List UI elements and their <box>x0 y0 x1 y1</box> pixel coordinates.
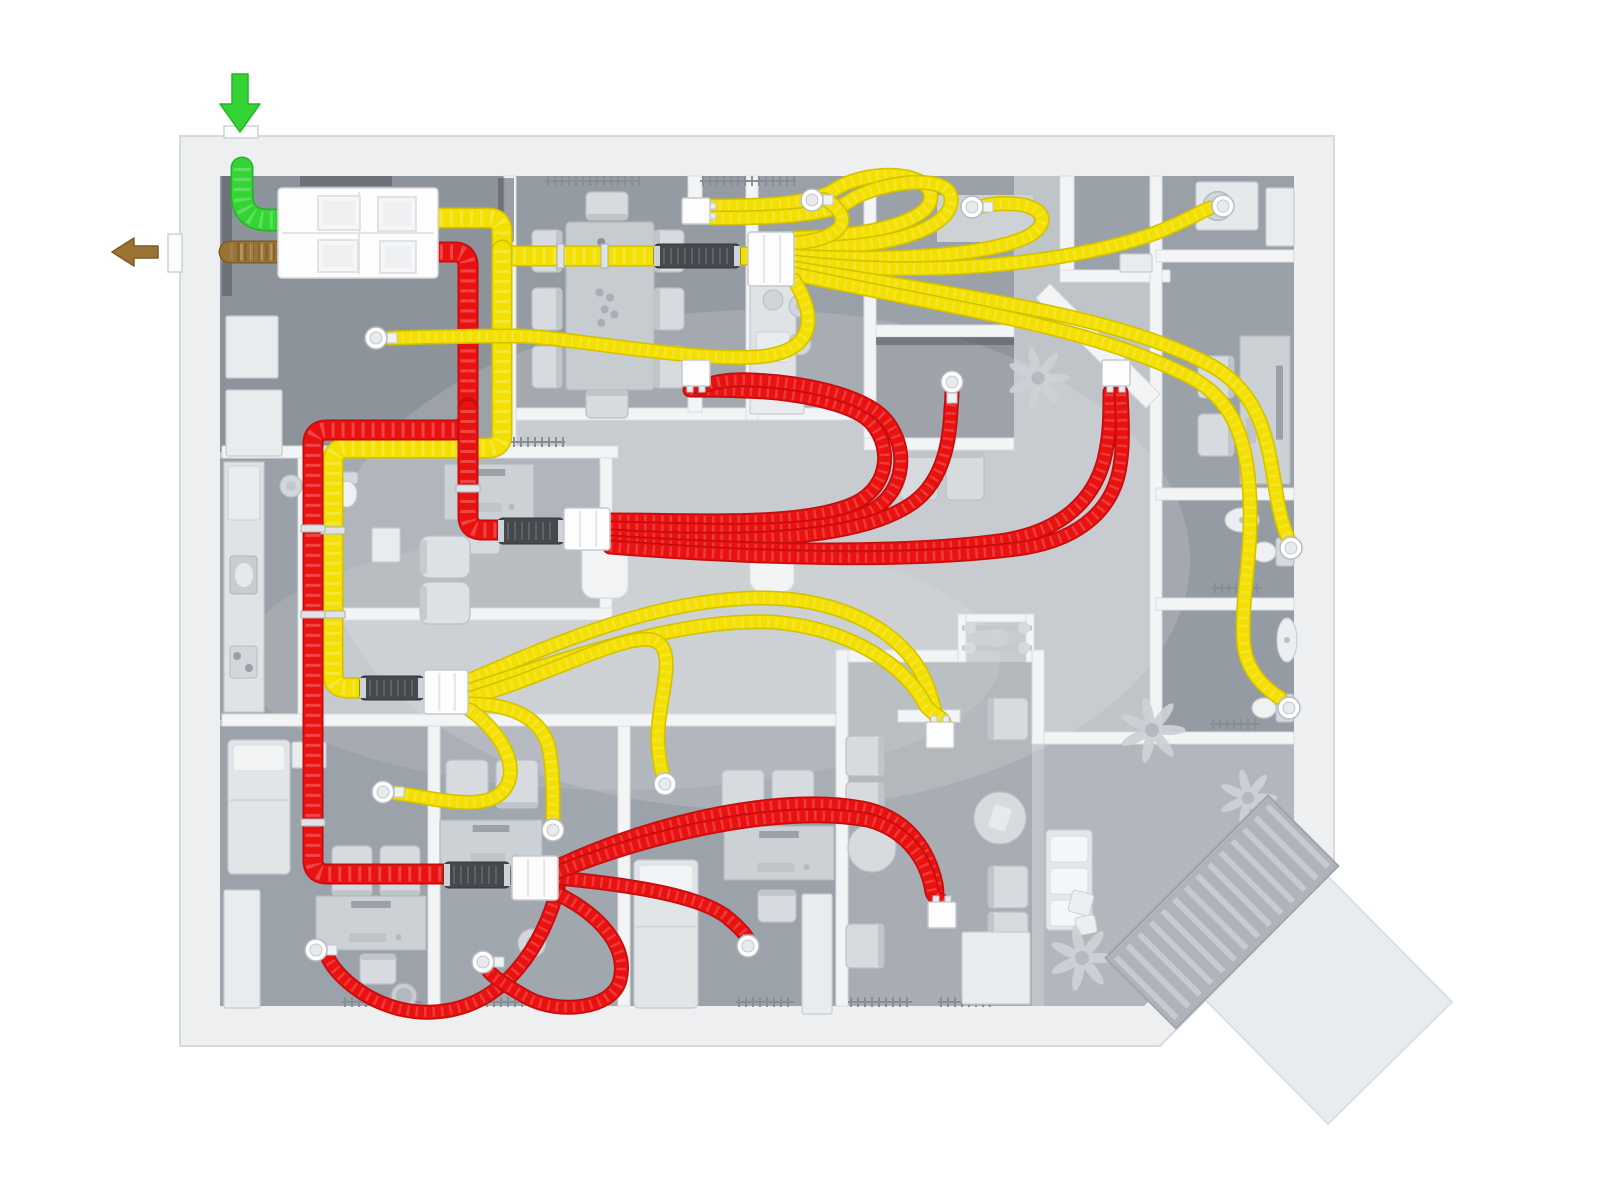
exhaust-air-arrow <box>112 238 158 266</box>
shadow-1 <box>300 176 392 186</box>
hvac-floorplan-render <box>0 0 1600 1200</box>
duct-coupler-6 <box>456 485 480 492</box>
waiting-chair-5 <box>988 866 1028 908</box>
meeting-chair-8 <box>586 390 628 418</box>
wall-26 <box>1032 650 1044 744</box>
duct-coupler-7 <box>601 244 608 268</box>
supply-diffuser-exam3 <box>654 773 676 795</box>
lounge-chair-1 <box>420 536 470 578</box>
extract-diffuser-exam3 <box>737 935 759 957</box>
fresh-air-arrow <box>220 74 260 132</box>
meeting-chair-2 <box>532 288 562 330</box>
side-table <box>372 528 400 562</box>
wall-23 <box>958 614 1034 622</box>
waiting-chair-1 <box>846 736 884 776</box>
silencer-extract-mid <box>498 518 564 544</box>
waiting-chair-3 <box>846 924 884 968</box>
duct-coupler-4 <box>301 611 325 618</box>
duct-coupler-3 <box>301 525 325 532</box>
wall-vent-cap-2 <box>168 234 182 272</box>
wall-11 <box>1156 250 1294 262</box>
tall-cabinet-right <box>1266 188 1294 246</box>
waiting-round-table <box>974 792 1026 844</box>
exam3-office-chair <box>758 890 796 922</box>
silencer-supply-bottom <box>360 676 424 700</box>
wc2-basin <box>1277 618 1297 662</box>
exam1-bed <box>228 740 290 874</box>
waiting-chair-4 <box>988 698 1028 740</box>
kitchenette-counter <box>224 462 264 712</box>
storage-cabinet-2 <box>226 390 282 456</box>
meeting-chair-7 <box>586 192 628 220</box>
extract-manifold-mid <box>564 508 610 550</box>
meeting-chair-3 <box>532 346 562 388</box>
exam3-cabinet <box>802 894 832 1014</box>
supply-diffuser-washroom <box>1212 195 1234 217</box>
kitchenette-stool <box>280 475 302 497</box>
exam3-desk <box>724 826 834 880</box>
lounge-chair-2 <box>420 582 470 624</box>
supply-manifold-north <box>748 232 794 286</box>
exam1-desk <box>316 896 426 950</box>
supply-diffuser-wc1 <box>1280 537 1302 559</box>
extract-manifold-south <box>512 856 558 900</box>
hall-chair-2 <box>946 452 984 500</box>
supply-diffuser-wc2 <box>1278 697 1300 719</box>
duct-coupler-8 <box>557 244 564 268</box>
waiting-cabinet <box>962 932 1030 1004</box>
wall-6 <box>876 325 1014 337</box>
silencer-extract-bottom <box>444 862 510 888</box>
supply-diffuser-exam2 <box>542 819 564 841</box>
storage-cabinet-1 <box>226 316 278 378</box>
shelf-top-right <box>1120 254 1152 272</box>
shadow-4 <box>876 337 1014 345</box>
wall-13 <box>1156 598 1294 610</box>
supply-manifold-south <box>424 670 468 714</box>
wall-8 <box>1060 176 1074 280</box>
exam1-cabinet-1 <box>224 890 260 1008</box>
silencer-supply-top <box>654 244 740 268</box>
wall-24 <box>958 614 966 662</box>
exam1-office-chair <box>360 954 396 984</box>
meeting-chair-5 <box>654 288 684 330</box>
floorplan-canvas <box>0 0 1600 1200</box>
duct-coupler-5 <box>301 819 325 826</box>
